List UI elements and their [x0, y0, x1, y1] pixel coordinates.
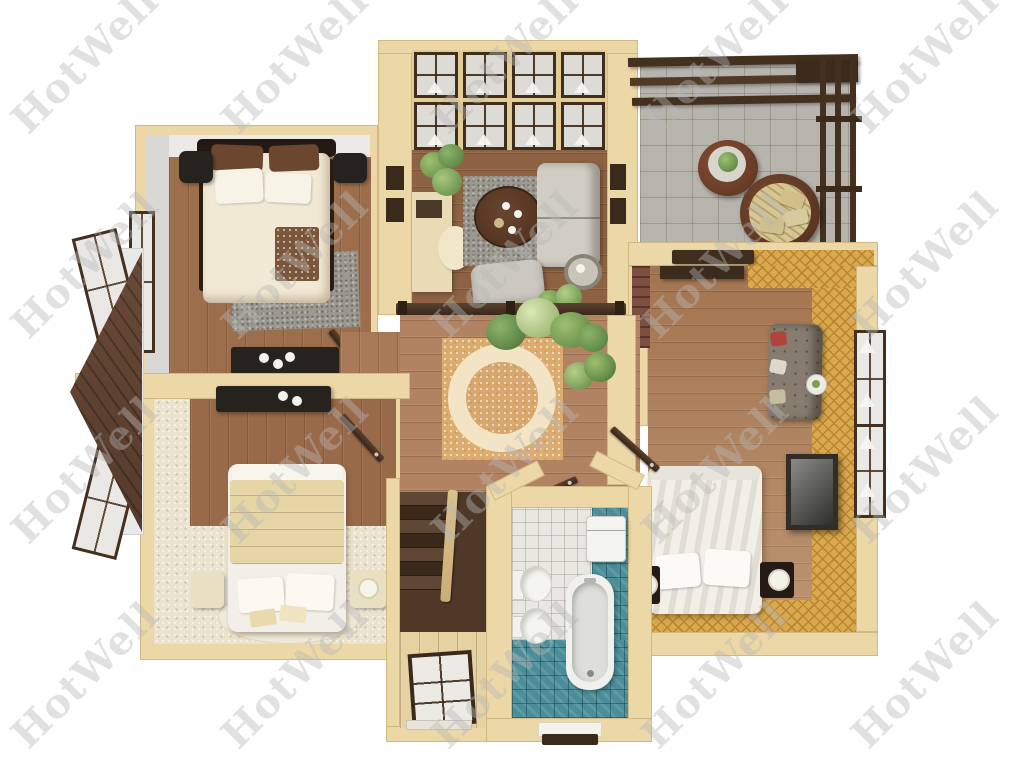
front-door — [407, 650, 476, 728]
bidet — [512, 608, 552, 644]
skylight-panel — [561, 52, 605, 98]
side-table — [806, 374, 827, 395]
skylight-panel — [512, 52, 556, 98]
bed-foot-fold — [650, 466, 760, 480]
bathtub-faucet — [584, 578, 596, 583]
cup — [508, 226, 516, 234]
nightstand — [179, 151, 213, 183]
porch-bay — [60, 220, 150, 560]
wall-frame — [386, 166, 404, 190]
cup — [494, 218, 504, 228]
stair-tread — [400, 534, 450, 548]
tv-wardrobe — [786, 454, 838, 530]
console-shelf — [660, 266, 744, 279]
skylight-panel — [561, 102, 605, 150]
entry-step — [406, 720, 472, 730]
cabinet-slot — [416, 200, 442, 218]
bathtub-basin — [572, 582, 608, 682]
cup — [514, 210, 522, 218]
sunroom-plant — [418, 144, 470, 200]
fence-rail — [816, 186, 862, 192]
living-gold-wall-band — [748, 250, 874, 266]
bed-pillow — [237, 576, 285, 613]
wall-frame — [610, 198, 626, 224]
nightstand-cream — [350, 570, 386, 608]
plate — [278, 391, 288, 401]
stair-tread — [400, 492, 450, 506]
bidet-bowl — [520, 608, 552, 644]
skylight-panel — [414, 102, 458, 150]
stairwell — [400, 492, 488, 632]
nightstand-dark — [760, 562, 794, 598]
bed-pillow — [703, 548, 751, 587]
daybed-pillow — [759, 216, 785, 234]
sunroom-coffee-table — [474, 186, 542, 248]
terrace-bench — [672, 250, 754, 264]
room-living-suite — [628, 266, 878, 656]
gold-carpet-right — [812, 266, 856, 606]
bed-pillow — [655, 552, 702, 590]
bath-wall-right — [628, 486, 652, 742]
skylight-panel — [463, 102, 507, 150]
bedroom2-dresser — [216, 386, 331, 412]
fence-rail — [816, 116, 862, 122]
terrace-daybed — [740, 174, 820, 252]
bedroom2-bed — [228, 464, 346, 632]
bed-base — [648, 466, 762, 614]
bathtub — [566, 574, 614, 690]
sunroom-cabinet — [412, 192, 452, 292]
nightstand-cream — [192, 572, 224, 608]
skylight-panel — [463, 52, 507, 98]
room-bathroom — [486, 486, 652, 742]
wall-frame — [386, 198, 404, 222]
sunroom-skylight-roof — [412, 50, 607, 150]
living-window-upper — [854, 330, 886, 428]
bath-bench — [542, 734, 598, 745]
floor-plan: HotWellHotWellHotWellHotWellHotWellHotWe… — [0, 0, 1024, 768]
watermark-text: HotWell — [2, 0, 168, 143]
plate — [273, 359, 283, 369]
living-sofa — [767, 324, 823, 421]
skylight-panel — [512, 102, 556, 150]
living-wall-bottom — [628, 632, 878, 656]
gold-carpet-top-corner — [748, 266, 856, 288]
table-plant — [718, 152, 738, 172]
plate — [285, 352, 295, 362]
bedroom1-dresser — [231, 347, 339, 375]
sofa-pillow — [769, 389, 786, 404]
tv-screen — [791, 459, 833, 525]
hall-plant-right — [564, 352, 616, 402]
sofa-pillow — [769, 358, 787, 375]
cup-green — [812, 380, 820, 388]
table-lamp — [358, 578, 379, 599]
toilet — [512, 566, 552, 602]
nightstand — [333, 153, 367, 183]
watermark-text: HotWell — [212, 0, 378, 143]
bed-pillow-white — [264, 172, 312, 204]
cup — [502, 202, 510, 210]
bed-pillow-white — [214, 168, 264, 204]
plate — [259, 353, 269, 363]
room-stair-entry — [386, 478, 502, 742]
suite-bed — [648, 466, 762, 614]
toilet-bowl — [520, 566, 552, 602]
wall-frame — [610, 164, 626, 190]
room-sunroom — [378, 40, 638, 315]
bed-pillow-brown — [269, 144, 320, 172]
terrace-fence — [820, 58, 860, 254]
bed-blanket — [230, 480, 344, 564]
bed-runner — [279, 605, 307, 624]
bathtub-drain — [587, 670, 594, 677]
room-terrace — [628, 46, 878, 266]
sunroom-sofa — [537, 163, 600, 267]
skylight-panel — [414, 52, 458, 98]
bath-wall-left — [486, 486, 512, 742]
living-window-lower — [854, 424, 886, 518]
stair-tread — [400, 506, 450, 520]
table-lamp — [768, 569, 790, 591]
plate — [292, 396, 302, 406]
entry-wall-left — [386, 478, 400, 742]
hall-rug-center — [466, 362, 538, 434]
bedroom1-bed — [203, 141, 330, 303]
sofa-pillow — [770, 331, 788, 347]
basket-dot — [576, 264, 585, 273]
stair-tread — [400, 520, 450, 534]
washing-machine — [586, 516, 626, 562]
bed-throw — [275, 227, 319, 281]
